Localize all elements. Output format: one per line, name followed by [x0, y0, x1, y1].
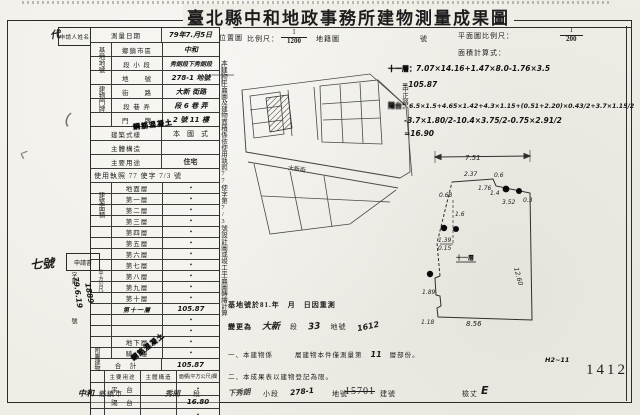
area-calculation: 十一層：7.07×14.16+1.47×8.0-1.76×3.5 =105.87…: [388, 58, 632, 138]
floor-row: 第五層•: [91, 238, 219, 249]
use-row: 主要用途 住宅: [91, 155, 219, 169]
floor-row: 第九層•: [91, 282, 219, 293]
cadastral-map-label: 地籍圖: [316, 34, 340, 44]
footer-city-label: 鄉鎮市: [99, 389, 123, 399]
floor-row: 第一層•: [91, 194, 219, 205]
svg-text:1.4: 1.4: [490, 190, 500, 197]
survey-result-sheet: 臺北縣中和地政事務所建物測量成果圖 位置圖 比例尺： 1 1200 地籍圖 號 …: [0, 0, 640, 415]
floor-row-eleven: 第十一層105.87: [91, 304, 219, 315]
svg-text:0.15: 0.15: [438, 245, 452, 252]
svg-text:1.6: 1.6: [455, 211, 465, 218]
svg-text:8.56: 8.56: [466, 320, 482, 328]
svg-text:1.39: 1.39: [438, 237, 452, 244]
total-row: 合 計 105.87: [91, 359, 219, 371]
floor-row: 地面層•: [91, 183, 219, 194]
site-group-label: 基地地號: [91, 41, 109, 79]
stray-mark: （: [55, 110, 69, 130]
svg-text:1.89: 1.89: [422, 289, 436, 296]
margin-note-hw: 七號: [29, 254, 54, 273]
application-no-suffix: 號: [70, 318, 76, 330]
svg-text:7.51: 7.51: [465, 154, 481, 162]
site-row: 地 號 278-1 地號: [91, 71, 219, 85]
floor-row: 第六層•: [91, 249, 219, 260]
floor-row: 第二層•: [91, 205, 219, 216]
svg-text:12.60: 12.60: [512, 266, 525, 286]
floor-row: 第七層•: [91, 260, 219, 271]
plan-note-hw: H2~11: [545, 356, 569, 364]
calc-balcony-stamp: 陽台：: [388, 102, 409, 110]
annex-group-label: 附屬建物: [91, 334, 102, 384]
location-scale-fraction: 1 1200: [281, 29, 307, 45]
footer-subsection-label: 小段: [263, 389, 279, 399]
footer-subsection-hw: 下秀朗: [228, 386, 251, 399]
footer-section-hw: 秀朗: [165, 388, 180, 399]
floor-row: 第十層•: [91, 293, 219, 304]
floor-row: 第四層•: [91, 227, 219, 238]
footer-section-label: 段: [193, 389, 201, 399]
location-scale-label: 比例尺：: [247, 34, 279, 44]
serial-stamp: 1412: [586, 362, 628, 379]
license-row: 使用執照 77 使字 7/3 號: [91, 169, 219, 183]
floor-row: 第八層•: [91, 271, 219, 282]
floor-plan: 2.37 0.6 1.76 1.4 3.52 0.3 0.68 1.6 1.39…: [420, 148, 610, 348]
annex-header-row: 主要用途 主體構造 面積(平方公尺)欄: [91, 371, 219, 383]
survey-date-row: 測量日期 79年7.月5日: [91, 28, 219, 43]
location-map-label: 位置圖: [219, 33, 243, 43]
page-title: 臺北縣中和地政事務所建物測量成果圖: [183, 4, 514, 29]
svg-text:3.52: 3.52: [502, 199, 516, 206]
subject-parcel-hatched: [266, 95, 292, 132]
area-calc-label: 面積計算式：: [458, 48, 506, 58]
footer-city-hw: 中和: [78, 388, 94, 399]
site-row: 鄉鎮市區 中和: [91, 43, 219, 57]
sheet-no-label: 號: [420, 34, 428, 44]
plan-scale-label: 平面圖比例尺：: [458, 31, 514, 41]
application-label: 申請書: [74, 258, 92, 267]
applicant-label: 申請人姓名: [59, 33, 89, 41]
remarks: 基地號於81.年 月 日因重測 變更為 大新 段 33 地號 1612 一、本建…: [228, 300, 428, 381]
plan-scale-fraction: 1 200: [560, 27, 583, 43]
plan-floor-stamp: 十一層: [456, 254, 474, 262]
floor-row: •: [91, 315, 219, 326]
structure-row: 主體構造: [91, 141, 219, 155]
door-row: 街 路 大新 街路: [91, 85, 219, 99]
door-row: 段 巷 弄 段 6 巷 弄: [91, 99, 219, 113]
door-group-label: 建物門牌: [91, 80, 109, 118]
footer-check-hw: E: [481, 384, 489, 397]
footer-building-no-label: 建號: [380, 389, 396, 399]
footer-register-no-struck: 15701: [345, 386, 375, 397]
plan-dim: 2.37: [464, 171, 478, 178]
floor-row: 騎 樓•: [91, 348, 219, 359]
footer-check-label: 檢丈: [462, 389, 478, 399]
annex-row: •: [91, 409, 219, 415]
calc-floor-stamp: 十一層：: [388, 65, 416, 73]
svg-text:0.3: 0.3: [523, 197, 533, 204]
floor-row: 第三層•: [91, 216, 219, 227]
building-data-table: 測量日期 79年7.月5日 鄉鎮市區 中和 段 小 段 秀朗段下秀朗段 地 號 …: [90, 27, 220, 415]
area-group-label: 建築面積: [91, 165, 109, 245]
site-row: 段 小 段 秀朗段下秀朗段: [91, 57, 219, 71]
svg-text:0.68: 0.68: [439, 192, 453, 199]
svg-text:0.6: 0.6: [494, 172, 504, 179]
